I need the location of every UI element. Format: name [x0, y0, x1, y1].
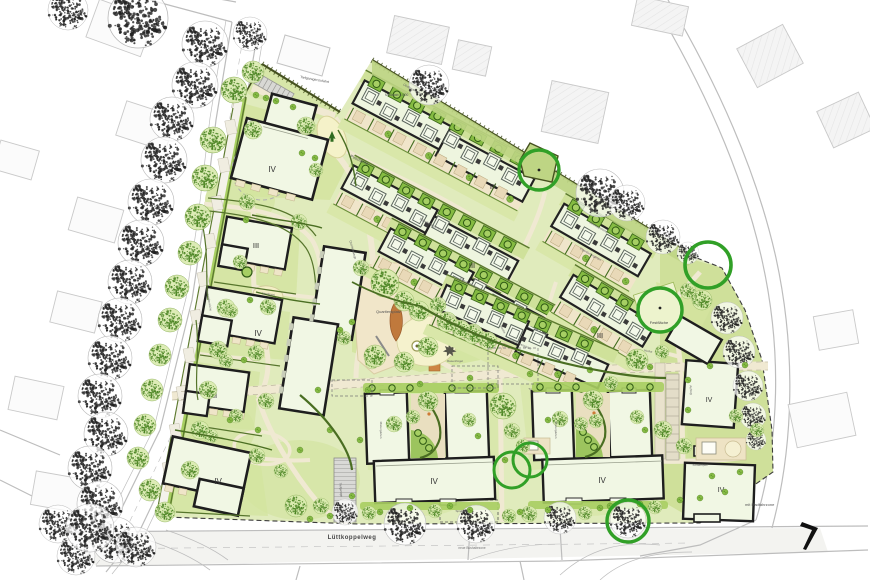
- svg-text:III: III: [253, 241, 259, 250]
- svg-text:Maßstab 1:500: Maßstab 1:500: [385, 93, 408, 97]
- svg-text:Mietergärten: Mietergärten: [379, 422, 383, 439]
- svg-text:Spielplatz: Spielplatz: [455, 509, 469, 513]
- svg-text:mit Radfahrzone: mit Radfahrzone: [745, 502, 775, 507]
- svg-text:Festfläche: Festfläche: [650, 320, 669, 325]
- svg-text:IV: IV: [214, 477, 222, 486]
- svg-text:neue Bushaltezone: neue Bushaltezone: [458, 546, 486, 550]
- svg-text:Quartiersplatz: Quartiersplatz: [376, 309, 401, 314]
- svg-text:III: III: [469, 261, 475, 270]
- svg-text:Mietergärten: Mietergärten: [554, 422, 558, 439]
- svg-text:Lüttkoppelweg: Lüttkoppelweg: [328, 535, 377, 541]
- svg-text:IV: IV: [706, 397, 713, 404]
- svg-text:III: III: [597, 331, 603, 340]
- svg-text:IV: IV: [254, 329, 262, 338]
- svg-text:III: III: [490, 182, 496, 191]
- svg-text:Aufzug: Aufzug: [689, 385, 694, 395]
- svg-text:IV: IV: [430, 477, 438, 486]
- svg-text:Kinderspiel: Kinderspiel: [693, 463, 708, 467]
- svg-text:IV: IV: [598, 476, 606, 485]
- svg-text:Rasenhügel: Rasenhügel: [447, 359, 463, 363]
- svg-text:IV: IV: [268, 165, 276, 174]
- svg-text:Tg: Tg: [528, 387, 532, 391]
